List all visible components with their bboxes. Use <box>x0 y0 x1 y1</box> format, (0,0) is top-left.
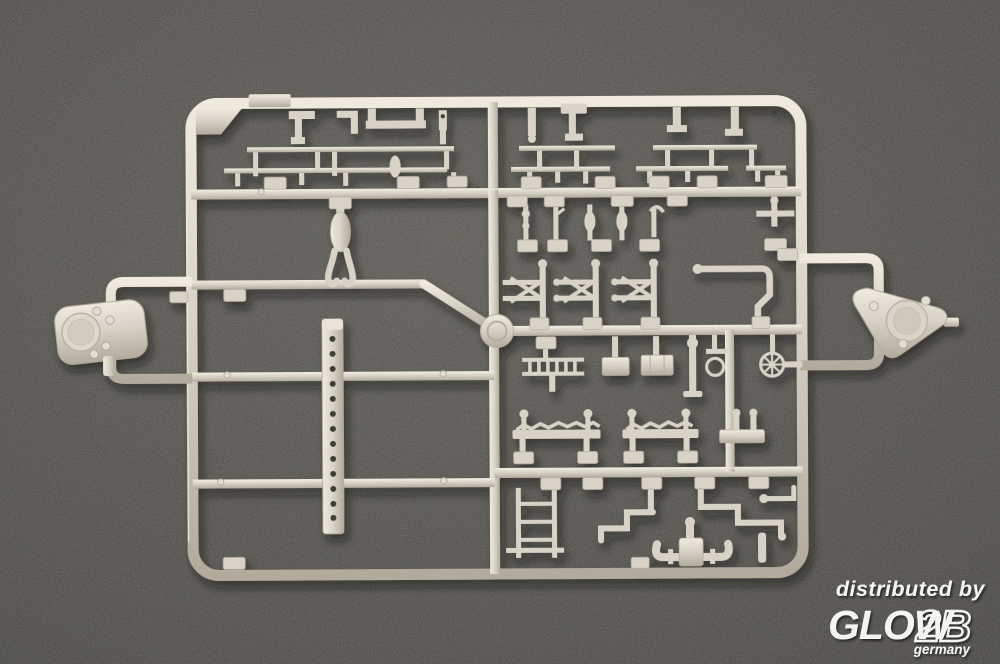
watermark-country: germany <box>913 642 972 657</box>
perforated-boom-part <box>322 319 344 534</box>
sprue-hub-disc <box>480 314 513 347</box>
watermark-distributed-by: distributed by <box>836 577 986 601</box>
photo-of-model-kit-sprue: distributed by GLOW 2B germany <box>0 0 1000 664</box>
watermark: distributed by GLOW 2B germany <box>828 577 986 657</box>
frame-left-tab <box>170 292 188 303</box>
frame-bottom-tab <box>223 557 245 569</box>
frame-top-tab <box>249 94 291 107</box>
